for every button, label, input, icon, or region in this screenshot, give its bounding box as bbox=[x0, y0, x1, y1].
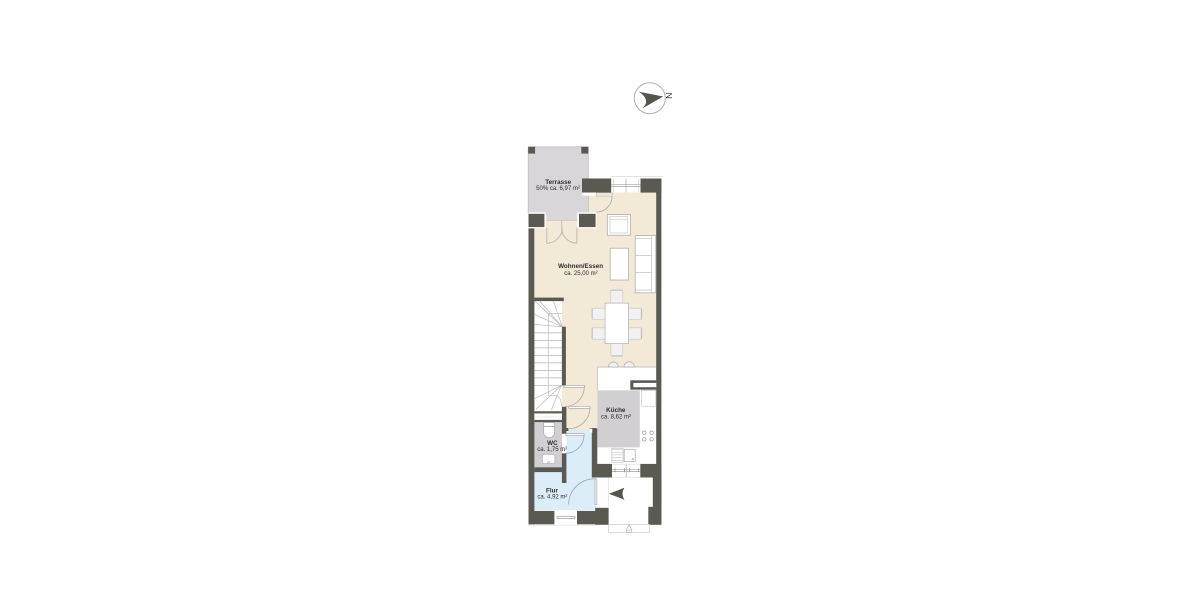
svg-text:Küche: Küche bbox=[606, 407, 626, 414]
svg-text:ca. 25,00 m²: ca. 25,00 m² bbox=[564, 271, 597, 277]
svg-text:50% ca. 6,97 m²: 50% ca. 6,97 m² bbox=[536, 186, 580, 192]
svg-text:ca. 4,92 m²: ca. 4,92 m² bbox=[537, 495, 567, 501]
svg-text:N: N bbox=[664, 93, 674, 99]
svg-text:ca. 1,75 m²: ca. 1,75 m² bbox=[537, 447, 567, 453]
svg-text:Flur: Flur bbox=[546, 487, 558, 494]
svg-text:Wohnen/Essen: Wohnen/Essen bbox=[558, 263, 603, 270]
svg-text:ca. 8,62 m²: ca. 8,62 m² bbox=[601, 414, 631, 420]
